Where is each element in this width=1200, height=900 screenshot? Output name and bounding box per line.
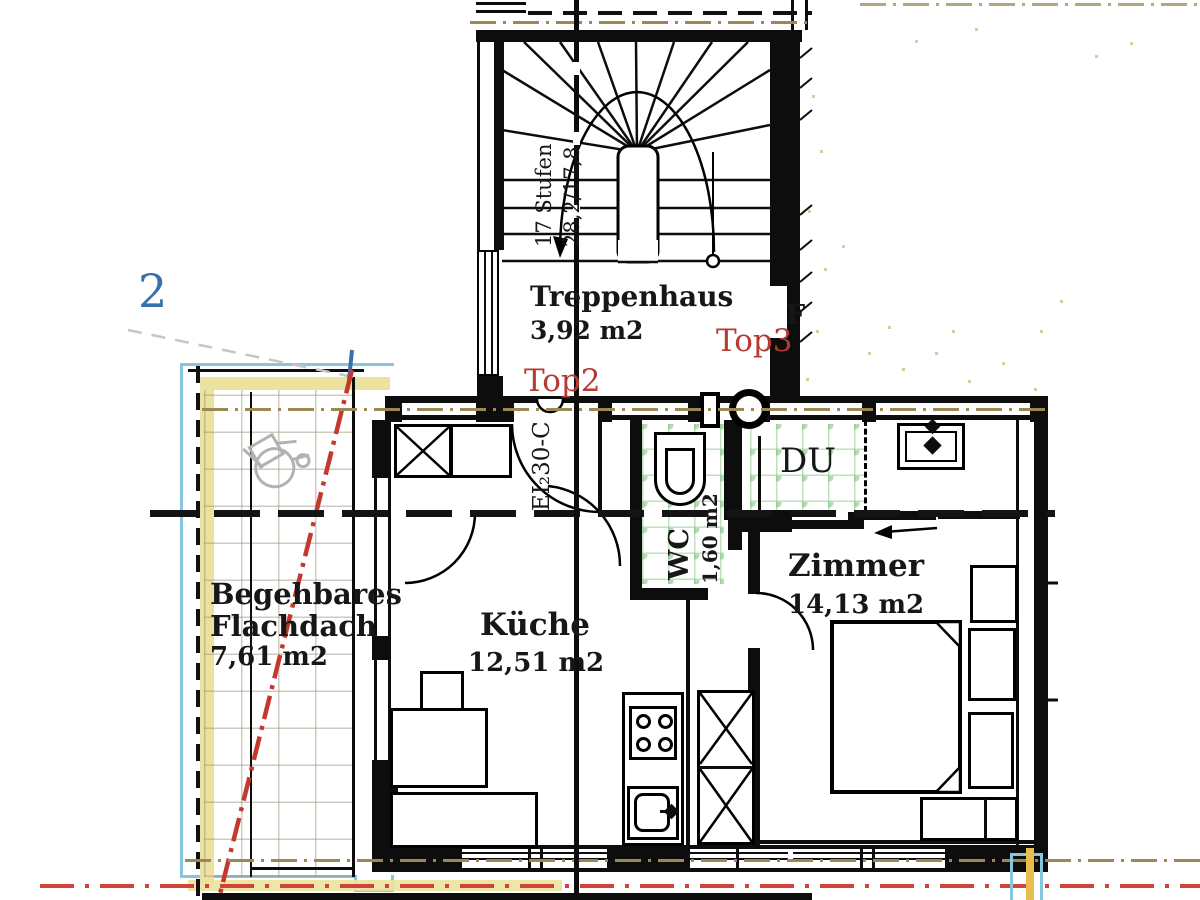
- stair-steps-label: 17 Stufen: [534, 144, 555, 247]
- area-label-kueche: 12,51 m2: [468, 650, 604, 676]
- room-label-kueche: Küche: [480, 610, 590, 641]
- yellow-vertical-line: [1026, 848, 1034, 900]
- linework-overlay: [0, 0, 1200, 900]
- partial-letter-f: F: [786, 302, 805, 329]
- area-label-zimmer: 14,13 m2: [788, 592, 924, 618]
- stair-core-base: [618, 240, 658, 262]
- gray-dashed-diagonal: [128, 330, 353, 377]
- room-label-zimmer: Zimmer: [788, 551, 924, 582]
- floor-plan: Treppenhaus 3,92 m2 Top2 Top3 F 2 17 Stu…: [0, 0, 1200, 900]
- door-rating-label: EI₂30-C: [531, 421, 554, 511]
- bed-fold-corners: [936, 622, 960, 792]
- area-label-treppenhaus: 3,92 m2: [530, 318, 643, 343]
- partial-digit-two: 2: [138, 268, 167, 314]
- exterior-hatch-ticks: [800, 48, 812, 342]
- unit-label-top3: Top3: [716, 326, 793, 357]
- hall-door-arc: [548, 486, 620, 566]
- section-line-gap-2: [573, 132, 580, 145]
- room-label-wc: WC: [666, 528, 693, 580]
- kitchen-door-arc: [405, 513, 475, 583]
- stair-dimensions-label: 28,2/17,8: [562, 146, 583, 247]
- room-label-du: DU: [780, 444, 836, 478]
- bottom-black-bar: [202, 893, 812, 900]
- tan-dashdot-bottom: [185, 859, 1200, 862]
- wheelchair-icon: [242, 422, 315, 494]
- room-label-flachdach-2: Flachdach: [210, 612, 377, 641]
- tan-dashdot-top-right: [860, 3, 1200, 6]
- area-label-flachdach: 7,61 m2: [210, 644, 328, 670]
- east-wall-ticks: [1048, 583, 1058, 700]
- section-line-gap-1: [573, 62, 580, 75]
- room-label-flachdach-1: Begehbares: [210, 580, 402, 609]
- tan-dashdot-mid: [202, 408, 1048, 411]
- room-label-treppenhaus: Treppenhaus: [530, 283, 733, 311]
- tan-dashdot-top: [470, 21, 812, 24]
- area-label-wc: 1,60 m2: [700, 493, 720, 584]
- cyan-right-2: [1040, 853, 1043, 900]
- entry-door-arc: [512, 424, 600, 512]
- cyan-right-1: [1010, 853, 1013, 900]
- section-dashed-line: [150, 510, 1055, 517]
- sliding-door-arrow: [874, 525, 937, 539]
- unit-label-top2: Top2: [524, 366, 601, 397]
- door-swing-arcs: [405, 424, 813, 650]
